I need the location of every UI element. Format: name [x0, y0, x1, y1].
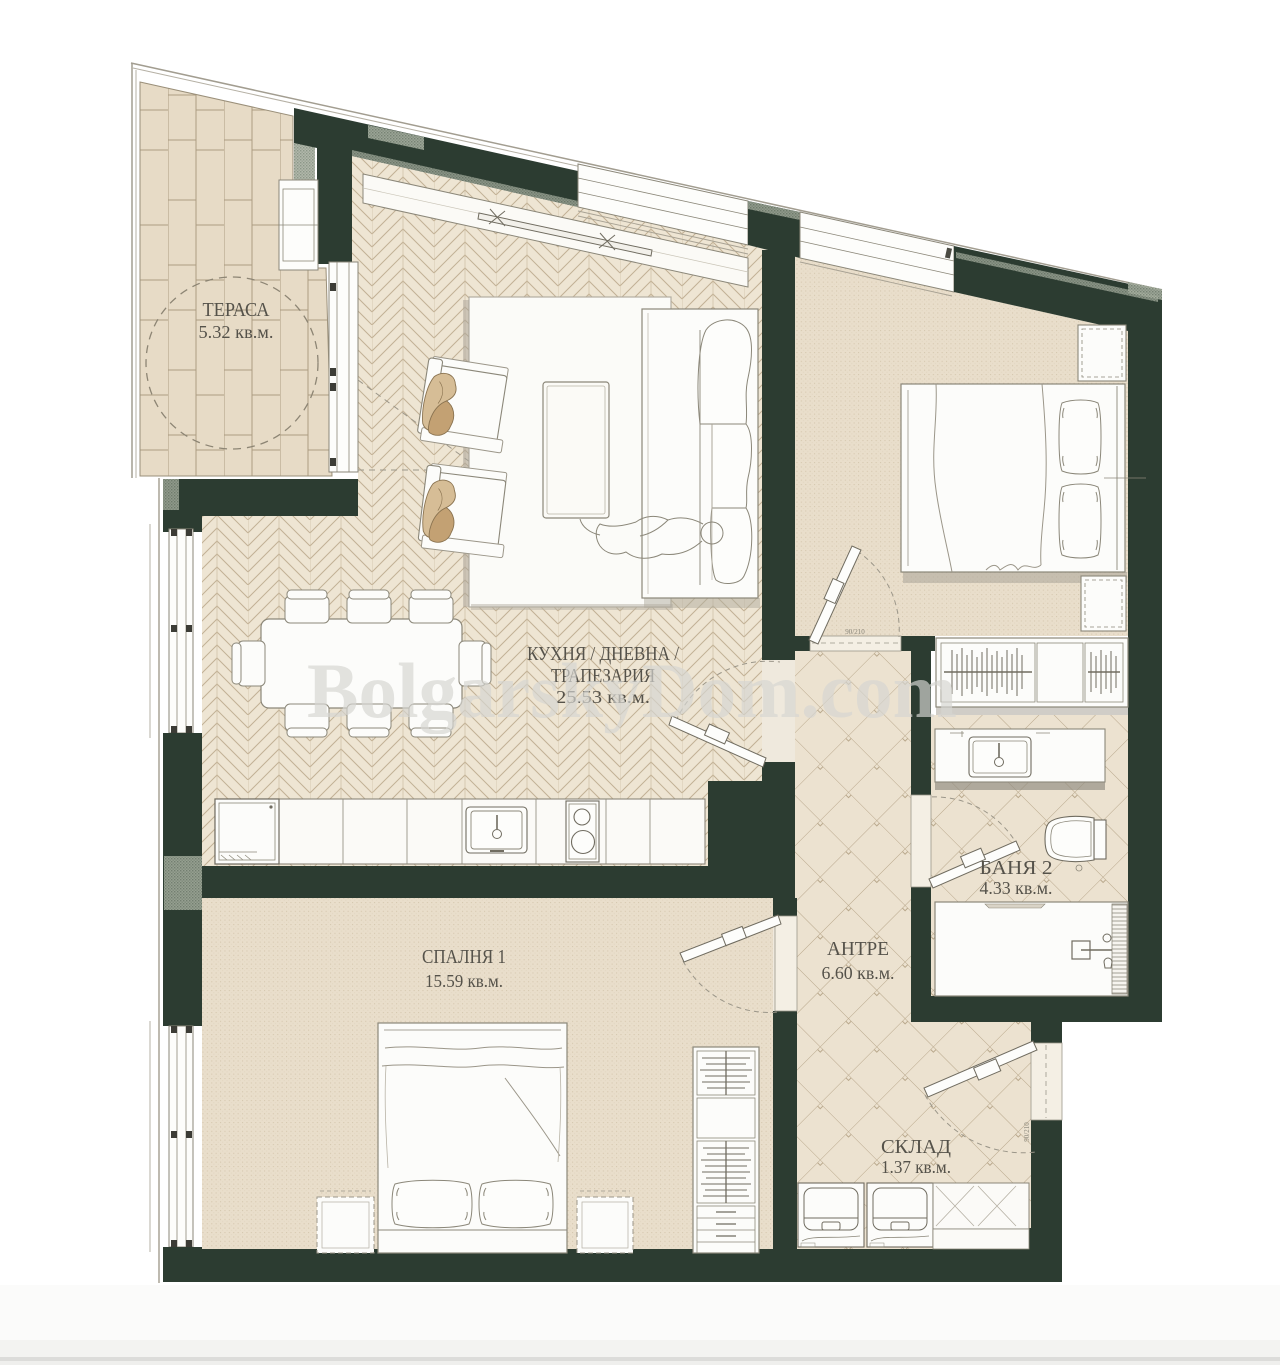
svg-text:15.59 кв.м.: 15.59 кв.м. — [425, 971, 503, 991]
svg-text:6.60 кв.м.: 6.60 кв.м. — [822, 963, 895, 983]
svg-text:4.33 кв.м.: 4.33 кв.м. — [980, 878, 1053, 898]
svg-text:90/210: 90/210 — [1023, 1122, 1031, 1142]
svg-text:ТЕРАСА: ТЕРАСА — [203, 299, 271, 321]
svg-text:5.32 кв.м.: 5.32 кв.м. — [199, 322, 274, 342]
svg-text:СКЛАД: СКЛАД — [881, 1136, 951, 1158]
svg-text:BolgarskyDom.com: BolgarskyDom.com — [307, 647, 957, 734]
svg-text:БАНЯ 2: БАНЯ 2 — [980, 857, 1053, 879]
svg-text:90/210: 90/210 — [845, 628, 865, 636]
svg-text:1.37 кв.м.: 1.37 кв.м. — [881, 1157, 951, 1177]
svg-text:СПАЛНЯ 1: СПАЛНЯ 1 — [422, 946, 506, 968]
svg-text:АНТРЕ: АНТРЕ — [827, 938, 889, 960]
